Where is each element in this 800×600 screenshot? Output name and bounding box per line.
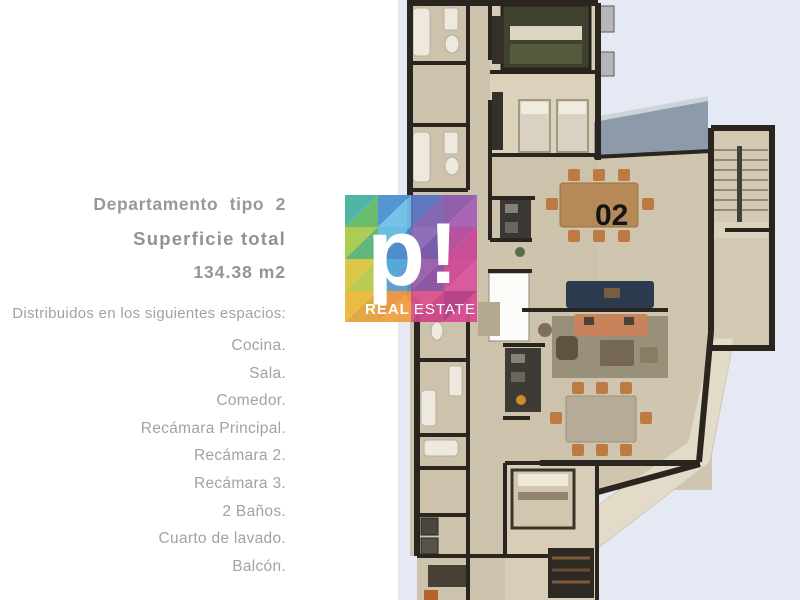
coffee-table [600,340,634,366]
logo-brand-real: REAL [365,301,410,318]
total-area-value: 134.38 m2 [0,262,286,283]
space-item-cocina: Cocina. [0,332,286,360]
spaces-intro: Distribuidos en los siguientes espacios: [0,305,286,322]
master-closet [492,16,503,64]
info-column: Departamento tipo 2 Superficie total 134… [0,0,286,580]
space-item-sala: Sala. [0,360,286,388]
logo-letter-p: p [367,200,425,306]
armchair [556,336,578,360]
dining-table [566,396,636,442]
space-item-recamara-principal: Recámara Principal. [0,415,286,443]
logo-brand-text: REALESTATE [365,301,476,318]
bedroom2-closet [492,92,503,150]
apartment-type-title: Departamento tipo 2 [0,194,286,215]
logo-exclamation: ! [429,206,458,302]
closet [548,548,594,598]
space-item-recamara-2: Recámara 2. [0,442,286,470]
unit-number-label: 02 [595,199,628,232]
space-item-cuarto-lavado: Cuarto de lavado. [0,525,286,553]
flyer-page: 02 Departamento tipo 2 Superficie total … [0,0,800,600]
spaces-list: Cocina. Sala. Comedor. Recámara Principa… [0,332,286,580]
brand-logo: p ! REALESTATE [345,195,477,322]
space-item-balcon: Balcón. [0,553,286,581]
space-item-recamara-3: Recámara 3. [0,470,286,498]
logo-brand-estate: ESTATE [414,301,476,318]
space-item-comedor: Comedor. [0,387,286,415]
roof-accent [594,96,711,158]
master-bedroom [492,5,590,69]
surface-subtitle: Superficie total [0,228,286,250]
space-item-banos: 2 Baños. [0,498,286,526]
plant [515,247,525,257]
